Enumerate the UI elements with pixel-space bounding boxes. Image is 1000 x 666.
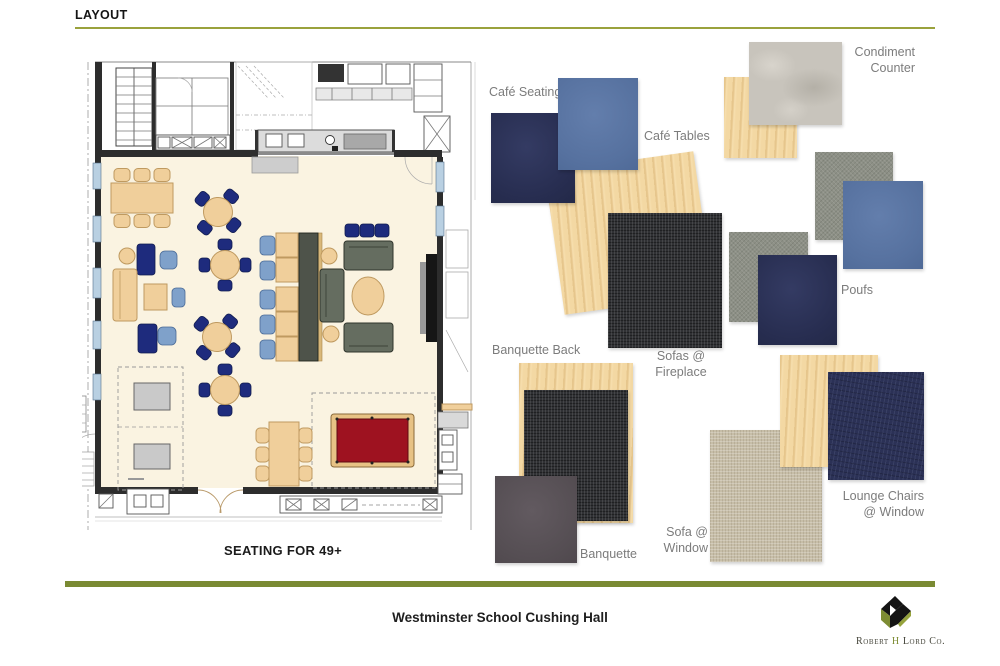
presentation-board: LAYOUT bbox=[0, 0, 1000, 666]
kitchen-zone bbox=[95, 62, 450, 156]
page-title: LAYOUT bbox=[75, 8, 128, 22]
label-cafe-tables: Café Tables bbox=[644, 128, 710, 144]
pool-table bbox=[331, 414, 414, 467]
floor-plan: UP bbox=[82, 58, 478, 534]
left-exterior: UP bbox=[82, 396, 95, 486]
logo-text-h: H bbox=[892, 636, 900, 647]
logo-mark-icon bbox=[874, 594, 918, 632]
logo-text: Robert H Lord Co. bbox=[856, 636, 940, 647]
label-lounge-chairs: Lounge Chairs @ Window bbox=[838, 488, 924, 520]
swatch-condiment-counter-stone bbox=[749, 42, 842, 125]
label-cafe-seating: Café Seating bbox=[489, 84, 561, 100]
swatch-poufs-blue bbox=[843, 181, 923, 269]
banquette bbox=[260, 233, 322, 361]
closet bbox=[156, 78, 228, 135]
communal-table bbox=[111, 169, 173, 228]
dining-table bbox=[256, 422, 312, 486]
label-sofas-fireplace: Sofas @ Fireplace bbox=[648, 348, 714, 380]
label-poufs: Poufs bbox=[841, 282, 873, 298]
right-bay bbox=[438, 230, 472, 494]
footer-rule bbox=[65, 581, 935, 587]
label-sofa-window: Sofa @ Window bbox=[652, 524, 708, 556]
servery-counter bbox=[255, 130, 395, 152]
swatch-cafe-seating-blue bbox=[558, 78, 638, 170]
label-condiment-counter: Condiment Counter bbox=[830, 44, 915, 76]
fireplace bbox=[420, 254, 437, 342]
stair bbox=[116, 68, 152, 146]
swatch-lounge-chairs-denim bbox=[828, 372, 924, 480]
company-logo: Robert H Lord Co. bbox=[856, 592, 940, 652]
swatch-poufs-navy bbox=[758, 255, 837, 345]
swatch-banquette-leather bbox=[495, 476, 577, 563]
logo-text-robert: Robert bbox=[856, 636, 889, 647]
title-underline bbox=[75, 27, 935, 29]
counter-casework bbox=[156, 135, 230, 150]
label-banquette-back: Banquette Back bbox=[492, 342, 580, 358]
seating-caption: SEATING FOR 49+ bbox=[224, 543, 342, 558]
swatch-sofas-fireplace-tweed bbox=[608, 213, 722, 348]
logo-text-lordco: Lord Co. bbox=[903, 636, 945, 647]
entry-doors bbox=[198, 490, 243, 513]
label-banquette: Banquette bbox=[580, 546, 637, 562]
footer-title: Westminster School Cushing Hall bbox=[0, 610, 1000, 625]
serving-ledge bbox=[252, 157, 298, 173]
